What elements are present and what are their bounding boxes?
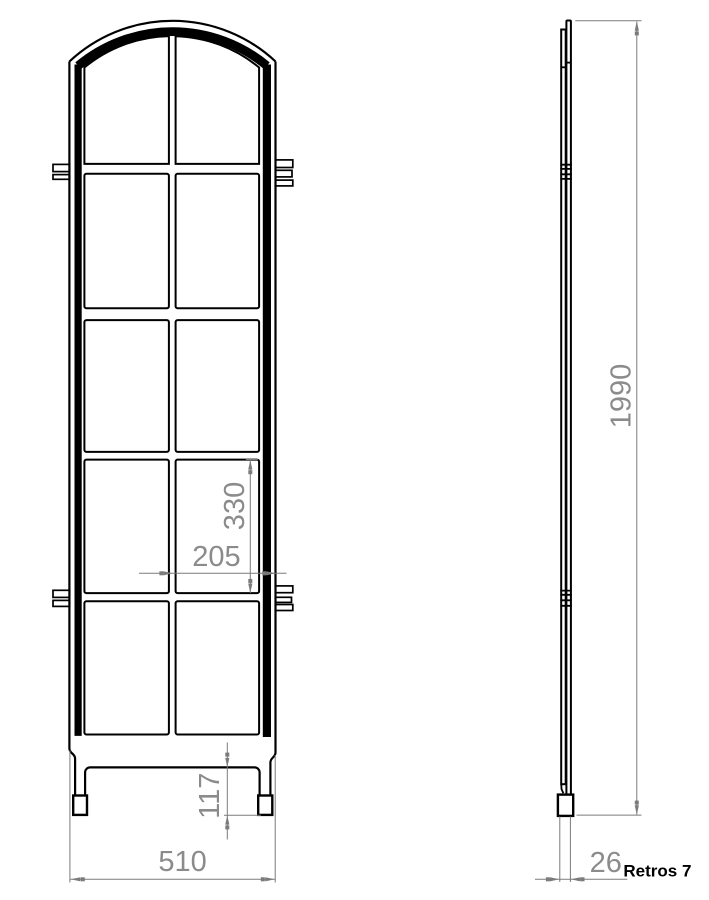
svg-text:205: 205 (192, 541, 240, 573)
svg-text:Retros 7: Retros 7 (623, 862, 691, 881)
svg-text:26: 26 (590, 847, 622, 879)
svg-text:1990: 1990 (606, 364, 638, 429)
svg-text:510: 510 (158, 846, 206, 878)
svg-text:330: 330 (219, 482, 251, 530)
svg-text:117: 117 (194, 773, 226, 819)
